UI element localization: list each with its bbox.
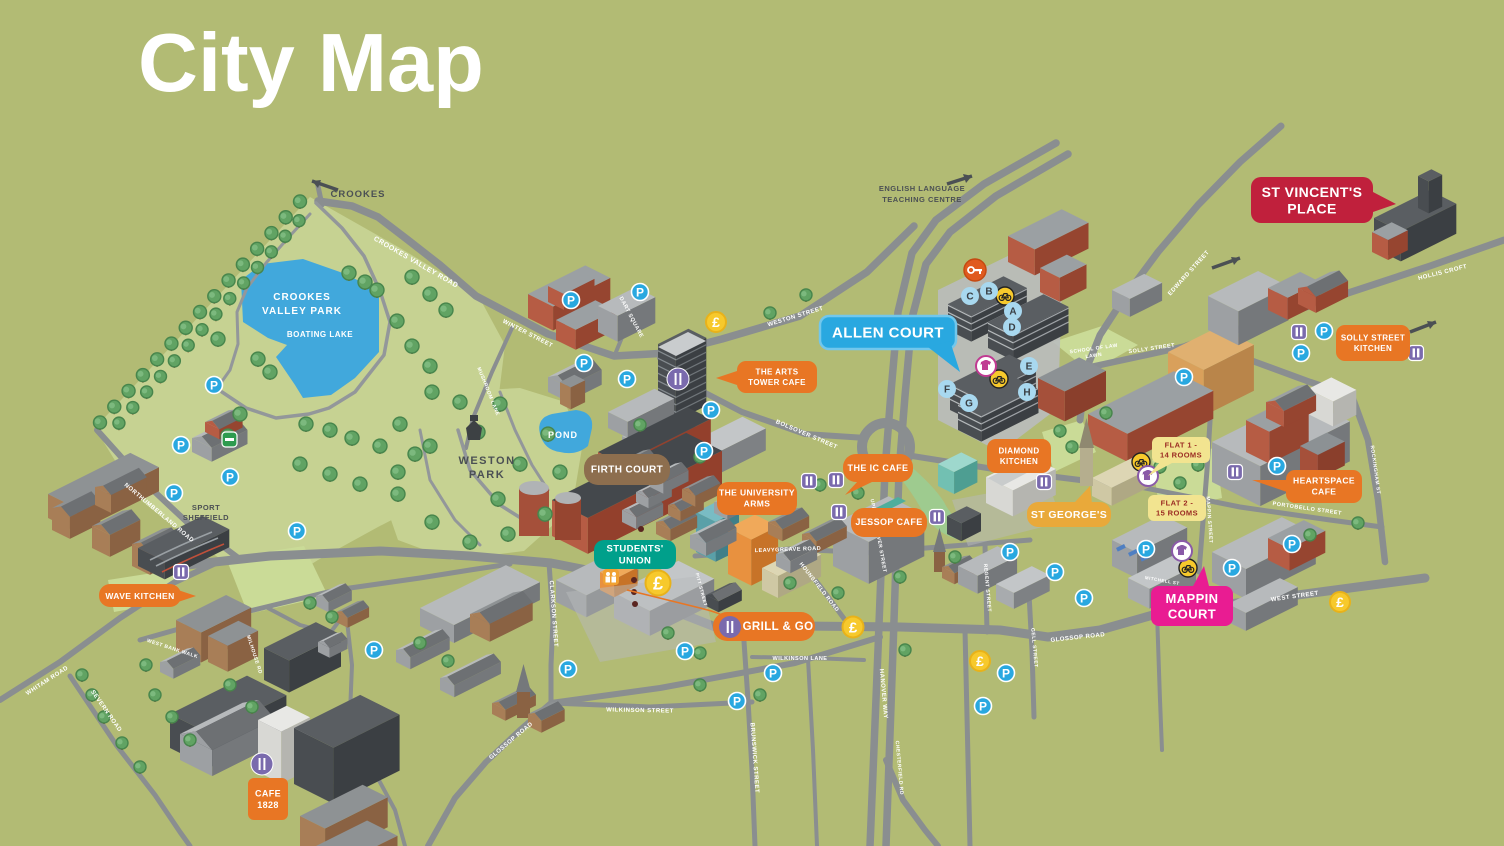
svg-text:P: P xyxy=(1006,545,1014,559)
svg-text:P: P xyxy=(1142,542,1150,556)
svg-text:CAFE: CAFE xyxy=(1312,487,1337,497)
svg-text:UNION: UNION xyxy=(619,555,652,566)
svg-text:City Map: City Map xyxy=(138,16,484,109)
svg-text:ST VINCENT'S: ST VINCENT'S xyxy=(1262,184,1363,200)
svg-text:PARK: PARK xyxy=(469,469,505,481)
svg-text:£: £ xyxy=(976,653,984,669)
svg-text:P: P xyxy=(293,524,301,538)
svg-text:1828: 1828 xyxy=(257,800,279,810)
svg-text:ST GEORGE'S: ST GEORGE'S xyxy=(1031,509,1107,521)
svg-text:FLAT 1 -: FLAT 1 - xyxy=(1165,441,1198,450)
svg-text:SHEFFIELD: SHEFFIELD xyxy=(183,513,229,522)
svg-text:P: P xyxy=(769,666,777,680)
svg-text:KITCHEN: KITCHEN xyxy=(1000,457,1038,466)
svg-text:14 ROOMS: 14 ROOMS xyxy=(1160,451,1202,460)
svg-text:FLAT 2 -: FLAT 2 - xyxy=(1161,499,1194,508)
svg-text:STUDENTS': STUDENTS' xyxy=(606,543,663,554)
svg-text:CAFE: CAFE xyxy=(255,789,281,799)
svg-text:P: P xyxy=(1273,459,1281,473)
svg-text:GRILL & GO: GRILL & GO xyxy=(743,621,814,633)
svg-text:CROOKES: CROOKES xyxy=(273,292,331,303)
svg-text:P: P xyxy=(170,486,178,500)
svg-text:P: P xyxy=(1180,370,1188,384)
svg-text:KITCHEN: KITCHEN xyxy=(1354,344,1392,353)
svg-text:P: P xyxy=(623,372,631,386)
svg-text:P: P xyxy=(564,662,572,676)
svg-text:P: P xyxy=(1297,346,1305,360)
svg-text:WILKINSON STREET: WILKINSON STREET xyxy=(606,707,674,714)
svg-text:P: P xyxy=(700,444,708,458)
svg-text:P: P xyxy=(226,470,234,484)
svg-text:£: £ xyxy=(1336,594,1344,610)
svg-text:HEARTSPACE: HEARTSPACE xyxy=(1293,476,1355,486)
svg-text:THE ARTS: THE ARTS xyxy=(756,368,799,377)
svg-text:P: P xyxy=(1002,666,1010,680)
svg-text:ENGLISH LANGUAGE: ENGLISH LANGUAGE xyxy=(879,184,965,193)
svg-text:£: £ xyxy=(653,573,663,593)
svg-text:MAPPIN: MAPPIN xyxy=(1166,591,1219,606)
svg-text:P: P xyxy=(567,293,575,307)
svg-text:15 ROOMS: 15 ROOMS xyxy=(1156,509,1198,518)
svg-text:WILKINSON LANE: WILKINSON LANE xyxy=(773,656,828,662)
svg-text:WESTON: WESTON xyxy=(458,455,515,467)
svg-text:THE UNIVERSITY: THE UNIVERSITY xyxy=(719,488,795,498)
svg-text:P: P xyxy=(1288,537,1296,551)
svg-text:A: A xyxy=(1009,307,1016,318)
svg-text:DIAMOND: DIAMOND xyxy=(998,447,1039,456)
svg-text:ALLEN COURT: ALLEN COURT xyxy=(832,324,944,341)
svg-text:SOLLY STREET: SOLLY STREET xyxy=(1341,334,1405,343)
svg-text:P: P xyxy=(177,438,185,452)
svg-text:£: £ xyxy=(712,314,720,330)
svg-text:P: P xyxy=(979,699,987,713)
svg-text:C: C xyxy=(966,292,973,303)
svg-text:PLACE: PLACE xyxy=(1287,200,1336,216)
svg-text:COURT: COURT xyxy=(1168,606,1216,621)
svg-text:TOWER CAFE: TOWER CAFE xyxy=(748,378,806,387)
svg-text:TEACHING CENTRE: TEACHING CENTRE xyxy=(882,195,962,204)
svg-text:CROOKES: CROOKES xyxy=(330,189,385,200)
svg-text:BOATING LAKE: BOATING LAKE xyxy=(287,330,353,339)
svg-text:THE IC CAFE: THE IC CAFE xyxy=(848,463,909,473)
svg-text:P: P xyxy=(580,356,588,370)
svg-text:P: P xyxy=(210,378,218,392)
svg-text:H: H xyxy=(1023,388,1030,399)
svg-text:P: P xyxy=(1320,324,1328,338)
svg-text:WAVE KITCHEN: WAVE KITCHEN xyxy=(105,591,174,601)
svg-text:P: P xyxy=(733,694,741,708)
svg-text:VALLEY PARK: VALLEY PARK xyxy=(262,306,342,317)
svg-text:£: £ xyxy=(849,619,858,636)
svg-text:SPORT: SPORT xyxy=(192,503,220,512)
svg-text:P: P xyxy=(636,285,644,299)
svg-text:P: P xyxy=(681,644,689,658)
svg-text:B: B xyxy=(985,287,992,298)
svg-text:G: G xyxy=(965,399,973,410)
svg-text:P: P xyxy=(707,403,715,417)
svg-text:FIRTH COURT: FIRTH COURT xyxy=(591,465,663,476)
svg-text:P: P xyxy=(1051,565,1059,579)
svg-text:F: F xyxy=(944,385,950,396)
svg-text:POND: POND xyxy=(548,430,578,440)
svg-text:P: P xyxy=(1228,561,1236,575)
svg-text:ARMS: ARMS xyxy=(744,499,771,509)
svg-text:P: P xyxy=(370,643,378,657)
svg-text:E: E xyxy=(1026,362,1033,373)
svg-text:JESSOP CAFE: JESSOP CAFE xyxy=(855,517,922,527)
svg-text:P: P xyxy=(1080,591,1088,605)
svg-text:D: D xyxy=(1008,323,1015,334)
